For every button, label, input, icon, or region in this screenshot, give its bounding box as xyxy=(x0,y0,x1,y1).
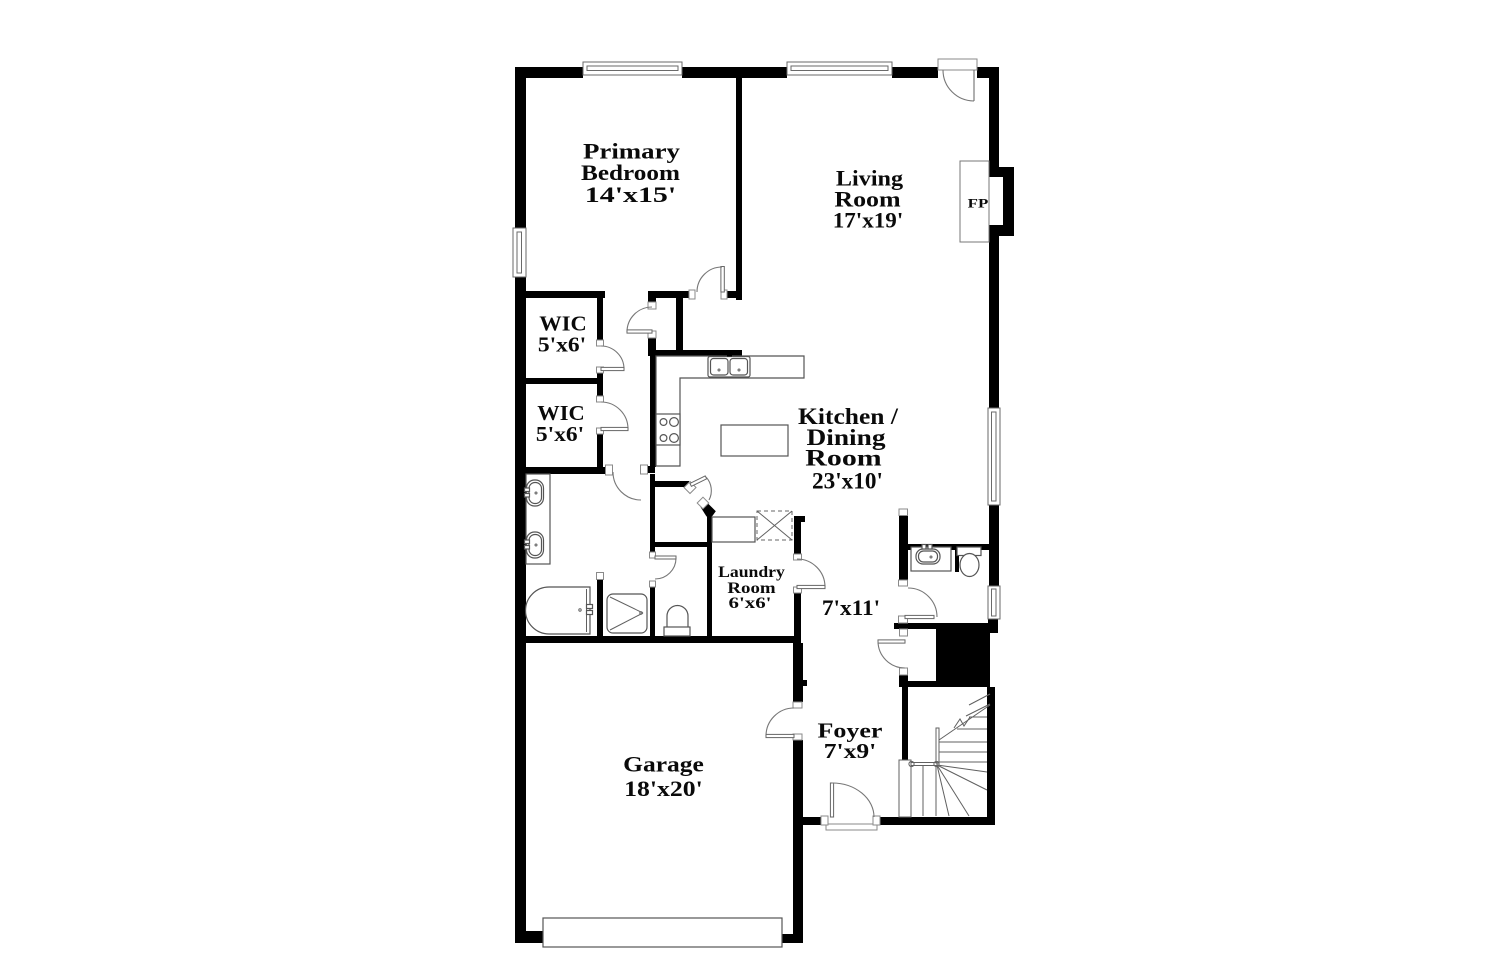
svg-text:7'x9': 7'x9' xyxy=(824,740,877,764)
svg-text:5'x6': 5'x6' xyxy=(536,422,584,446)
svg-text:6'x6': 6'x6' xyxy=(728,595,771,612)
svg-text:18'x20': 18'x20' xyxy=(624,778,703,802)
svg-text:5'x6': 5'x6' xyxy=(538,333,586,357)
svg-text:Laundry: Laundry xyxy=(718,563,785,581)
svg-text:FP: FP xyxy=(968,197,989,211)
svg-text:14'x15': 14'x15' xyxy=(585,182,676,207)
svg-text:23'x10': 23'x10' xyxy=(812,468,883,494)
svg-text:7'x11': 7'x11' xyxy=(822,596,880,620)
svg-text:17'x19': 17'x19' xyxy=(833,208,904,232)
svg-text:Garage: Garage xyxy=(623,753,704,777)
